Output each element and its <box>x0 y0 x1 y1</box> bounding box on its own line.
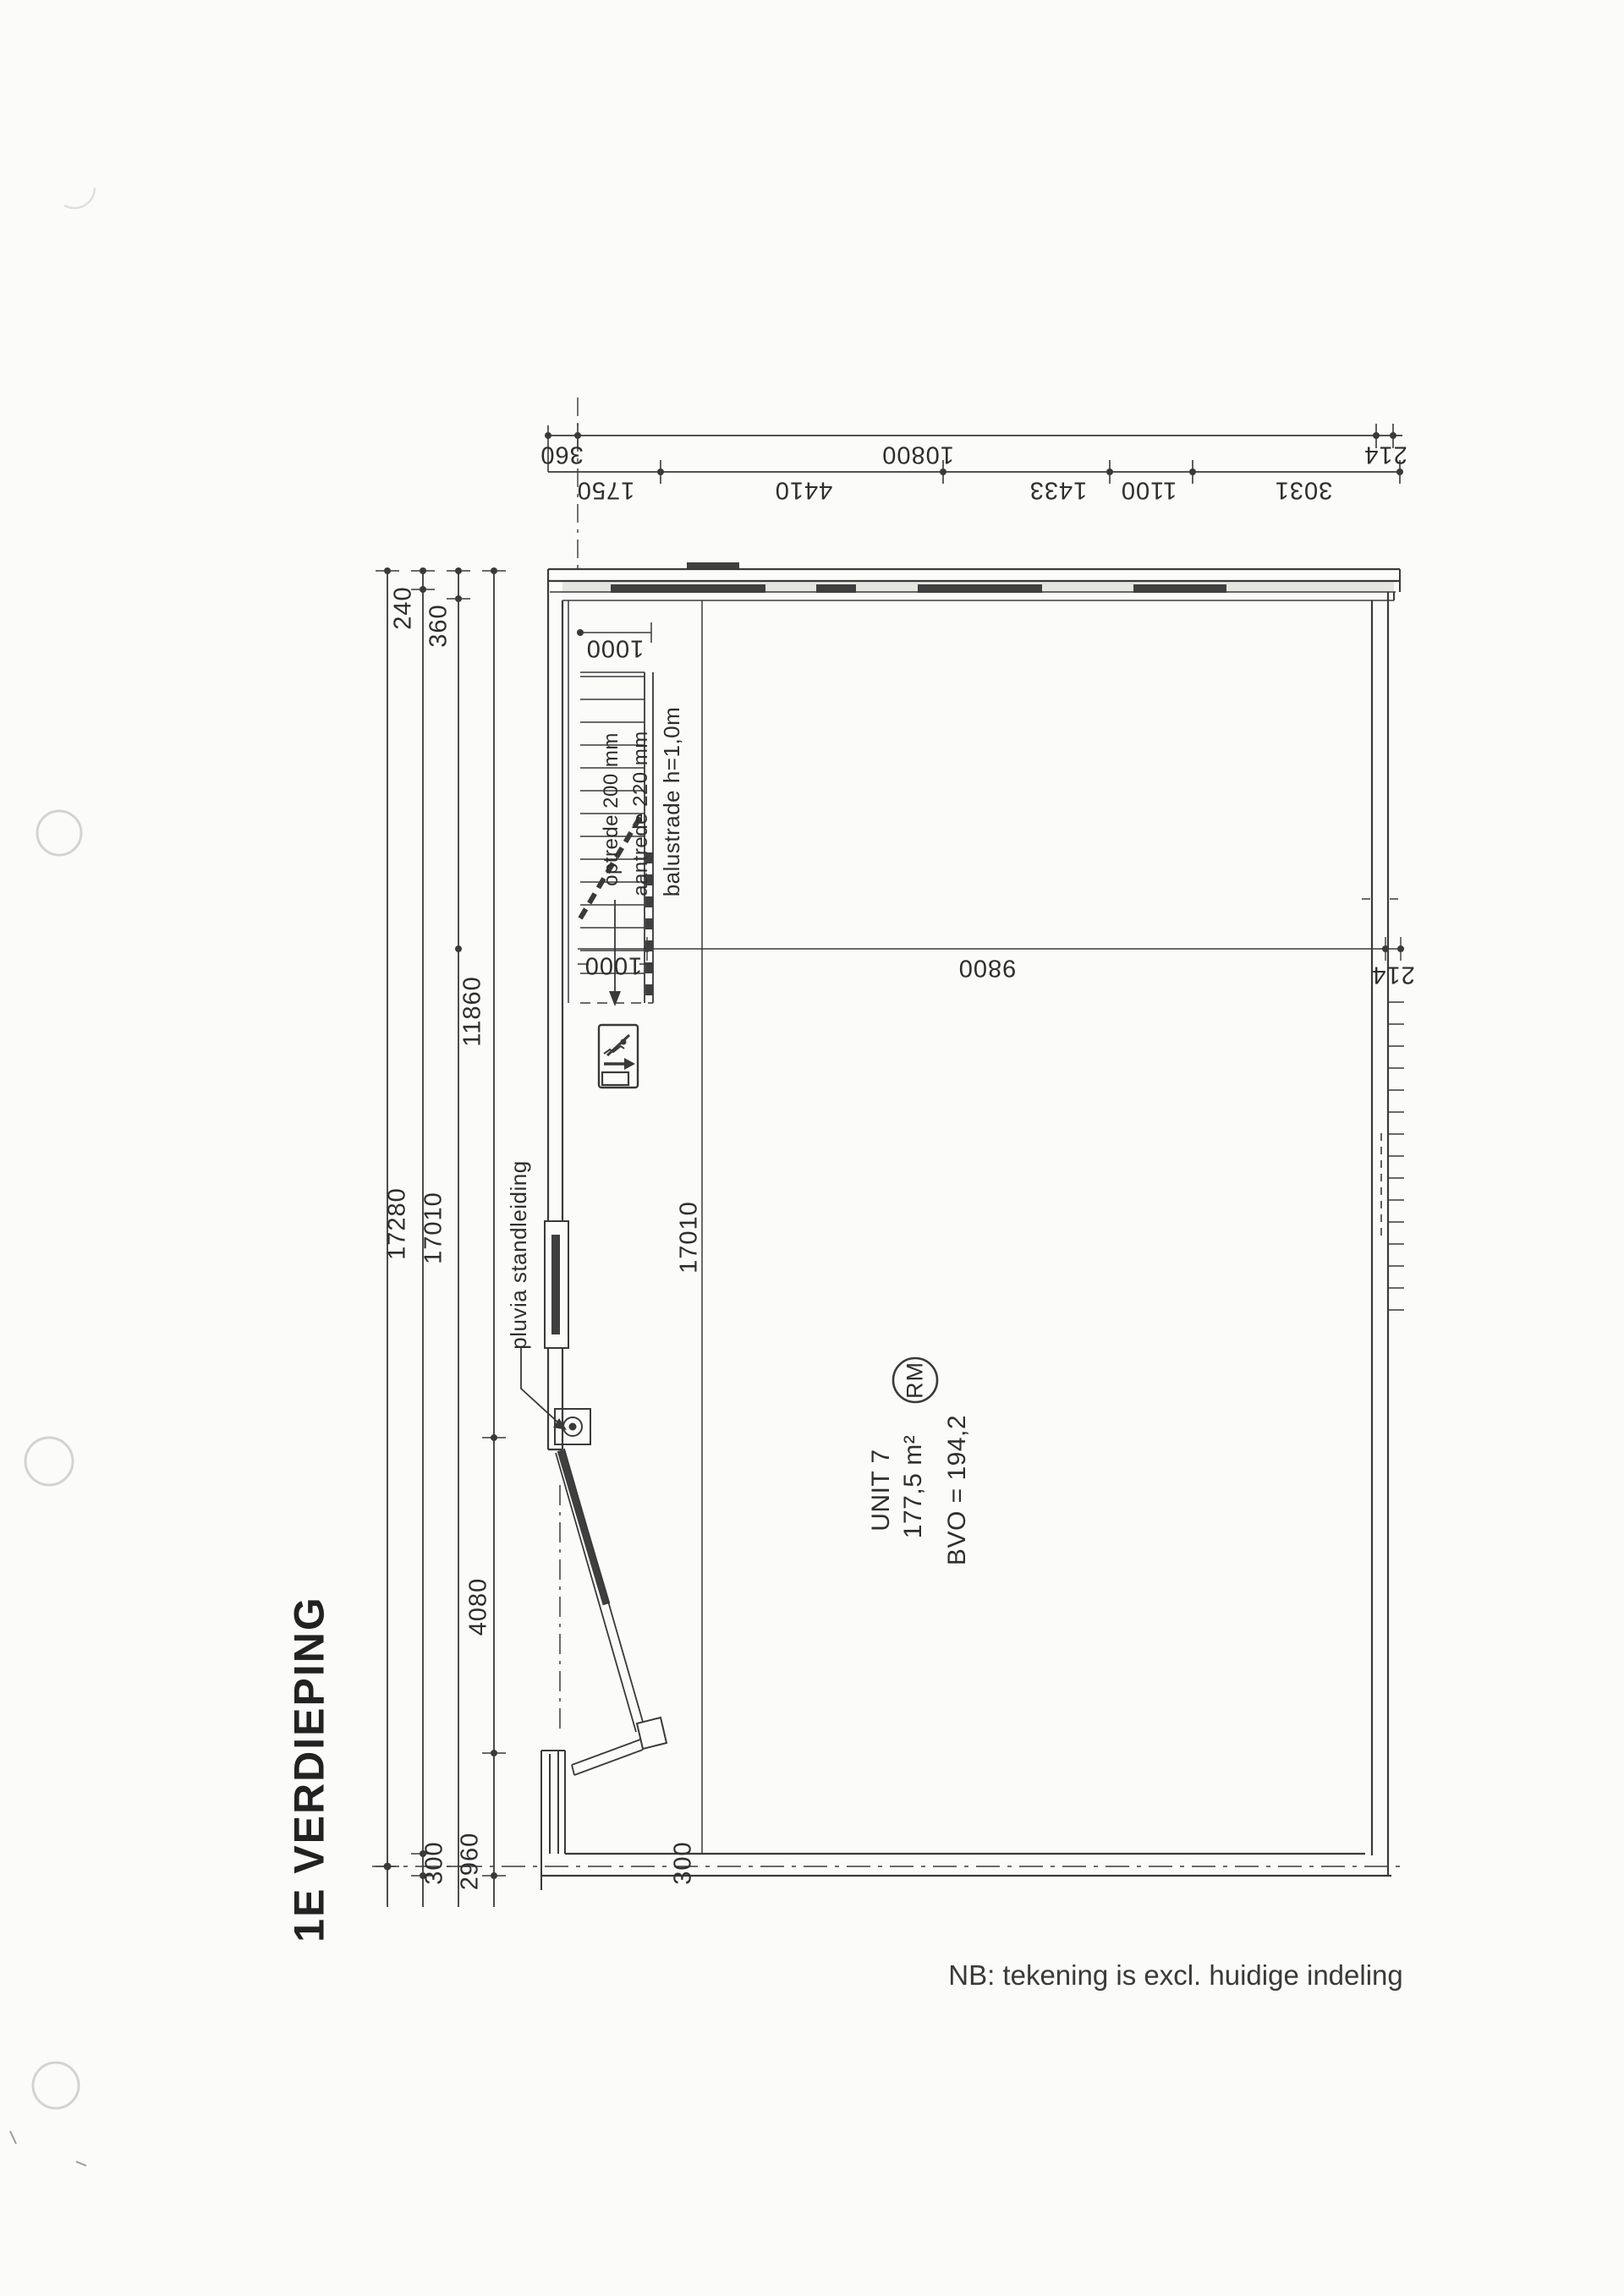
note-stair-tread: aantrede 220 mm <box>629 731 653 896</box>
dim-left-11860: 11860 <box>458 976 486 1047</box>
rm-badge: RM <box>902 1362 928 1399</box>
dim-top-10800: 10800 <box>881 440 954 468</box>
note-pluvia: pluvia standleiding <box>507 1160 532 1349</box>
dim-left-300: 300 <box>420 1841 448 1884</box>
unit-name: UNIT 7 <box>867 1449 897 1531</box>
dim-bottom-300: 300 <box>669 1841 697 1884</box>
dim-top-3031: 3031 <box>1275 475 1333 503</box>
dim-interior-17010: 17010 <box>675 1201 703 1274</box>
dim-top-214: 214 <box>1363 440 1407 468</box>
dim-left-240: 240 <box>389 586 417 629</box>
page-title: 1E VERDIEPING <box>285 1596 334 1942</box>
dim-interior-9800: 9800 <box>958 953 1017 981</box>
scanned-floor-plan-page: 1E VERDIEPING NB: tekening is excl. huid… <box>0 0 1624 2296</box>
window-glazing-strips <box>611 562 1226 593</box>
dim-left-4080: 4080 <box>464 1578 492 1636</box>
unit-bvo: BVO = 194,2 <box>943 1415 973 1565</box>
dim-stair-1000-bottom: 1000 <box>584 951 643 978</box>
dim-top-360: 360 <box>540 440 583 468</box>
ladder-icon <box>1388 1002 1404 1310</box>
note-stair-riser: optrede 200 mm <box>600 732 623 886</box>
punch-hole-icon <box>25 167 95 2108</box>
dim-top-4410: 4410 <box>775 475 833 503</box>
dim-left-2960: 2960 <box>456 1833 484 1891</box>
diagonal-glazed-wall <box>561 1450 606 1604</box>
note-balustrade: balustrade h=1,0m <box>660 707 685 897</box>
dim-top-1750: 1750 <box>577 475 635 503</box>
unit-area: 177,5 m² <box>899 1435 929 1538</box>
dim-top-1433: 1433 <box>1029 475 1088 503</box>
dim-left-17280: 17280 <box>383 1187 411 1260</box>
dim-left-17010: 17010 <box>420 1192 447 1264</box>
drawing-note: NB: tekening is excl. huidige indeling <box>948 1959 1403 1992</box>
dim-stair-1000-top: 1000 <box>586 633 645 661</box>
floor-plan-linework <box>0 0 1624 2296</box>
dim-left-360: 360 <box>425 604 453 647</box>
stair-symbol-box-icon <box>599 1025 638 1088</box>
dim-top-1100: 1100 <box>1121 475 1177 503</box>
dim-interior-214: 214 <box>1371 960 1414 988</box>
